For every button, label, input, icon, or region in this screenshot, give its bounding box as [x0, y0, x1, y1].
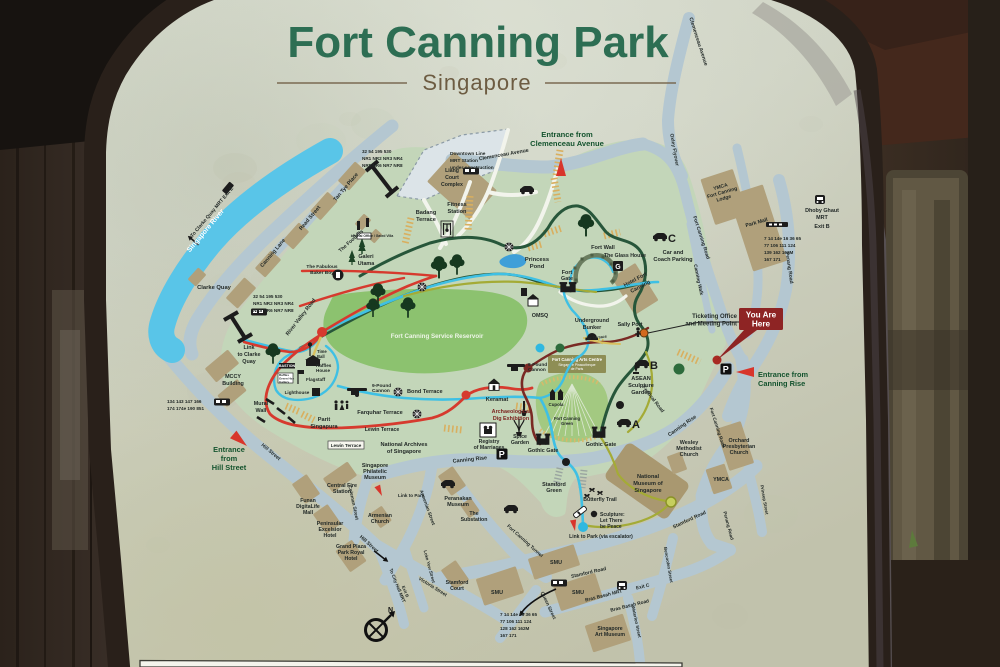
- svg-text:Link: Link: [243, 345, 254, 351]
- svg-text:Mall: Mall: [303, 510, 314, 516]
- svg-text:Green: Green: [561, 421, 574, 426]
- svg-text:Museum: Museum: [364, 475, 386, 481]
- svg-text:7 14 14e 16 36 65: 7 14 14e 16 36 65: [500, 612, 537, 617]
- svg-text:to Clarke: to Clarke: [237, 352, 260, 358]
- svg-text:Lewin Terrace: Lewin Terrace: [365, 427, 400, 433]
- svg-text:Flagstaff: Flagstaff: [306, 377, 326, 382]
- svg-text:National: National: [637, 474, 660, 480]
- svg-text:32 54 195 530: 32 54 195 530: [253, 294, 283, 299]
- svg-text:Link to Park (via escalator): Link to Park (via escalator): [569, 534, 633, 540]
- svg-text:134 143 147 166: 134 143 147 166: [167, 399, 202, 404]
- svg-text:Fort Canning Park: Fort Canning Park: [287, 18, 669, 67]
- svg-text:139 162 162M: 139 162 162M: [764, 250, 794, 255]
- svg-text:Court: Court: [450, 586, 464, 592]
- svg-text:G: G: [615, 264, 621, 271]
- svg-text:N: N: [388, 607, 393, 614]
- svg-text:Church: Church: [680, 452, 699, 458]
- svg-text:Keramat: Keramat: [486, 397, 509, 403]
- svg-text:Art Museum: Art Museum: [595, 632, 625, 638]
- svg-text:Here: Here: [752, 320, 771, 329]
- svg-text:Dhoby Ghaut: Dhoby Ghaut: [805, 208, 839, 214]
- svg-text:Entrance: Entrance: [213, 445, 245, 454]
- svg-text:Station: Station: [448, 209, 468, 215]
- svg-text:MRT Station: MRT Station: [450, 158, 478, 164]
- svg-text:Lighthouse: Lighthouse: [285, 390, 310, 395]
- svg-text:Museum of: Museum of: [633, 481, 663, 487]
- svg-text:Dig Exhibition: Dig Exhibition: [493, 416, 529, 422]
- svg-text:Car and: Car and: [663, 250, 684, 256]
- svg-text:A: A: [632, 419, 640, 431]
- svg-text:Gallery: Gallery: [279, 380, 290, 384]
- svg-text:and Meeting Point: and Meeting Point: [685, 322, 737, 328]
- svg-text:Court: Court: [445, 175, 459, 181]
- svg-text:Mural: Mural: [254, 401, 269, 407]
- svg-text:Gothic Gate: Gothic Gate: [528, 448, 559, 454]
- svg-text:Lewin Terrace: Lewin Terrace: [331, 443, 362, 448]
- svg-text:Underground: Underground: [575, 318, 609, 324]
- svg-text:OMSQ: OMSQ: [532, 313, 548, 319]
- svg-text:P: P: [723, 365, 729, 375]
- svg-text:Cannon: Cannon: [372, 388, 390, 394]
- svg-text:of Marriages: of Marriages: [474, 445, 505, 451]
- svg-text:Ball: Ball: [317, 354, 325, 359]
- svg-text:Terrace: Terrace: [416, 217, 436, 223]
- svg-text:Farquhar Terrace: Farquhar Terrace: [357, 410, 403, 416]
- svg-text:BASTION: BASTION: [279, 364, 296, 368]
- svg-text:Singapore: Singapore: [634, 488, 661, 494]
- svg-text:Ticketing Office: Ticketing Office: [692, 314, 738, 320]
- svg-text:SMU: SMU: [572, 590, 584, 596]
- svg-text:Building: Building: [222, 381, 244, 387]
- svg-text:Fitness: Fitness: [447, 202, 467, 208]
- svg-text:Clarke Quay: Clarke Quay: [197, 285, 232, 291]
- svg-text:Church: Church: [730, 450, 749, 456]
- svg-text:Parit: Parit: [318, 417, 331, 423]
- svg-text:Cupola: Cupola: [549, 402, 564, 407]
- svg-text:32 54 195 530: 32 54 195 530: [362, 149, 392, 154]
- svg-text:C: C: [668, 233, 676, 245]
- svg-text:Utama: Utama: [358, 261, 375, 267]
- svg-text:bPortal Office / Gated Villa: bPortal Office / Gated Villa: [351, 234, 394, 238]
- svg-text:Sally Port: Sally Port: [618, 322, 643, 328]
- svg-text:Green: Green: [546, 488, 562, 494]
- svg-text:The Fabulous: The Fabulous: [306, 264, 338, 270]
- svg-text:7 14 14e 16 36 65: 7 14 14e 16 36 65: [764, 236, 801, 241]
- svg-text:Fort Canning Service Reservoir: Fort Canning Service Reservoir: [391, 333, 484, 340]
- svg-text:of Singapore: of Singapore: [387, 449, 421, 455]
- svg-text:B: B: [650, 360, 658, 372]
- svg-text:Galeri: Galeri: [358, 254, 374, 260]
- svg-text:77 106 111 124: 77 106 111 124: [500, 619, 532, 624]
- svg-text:77 106 111 124: 77 106 111 124: [764, 243, 796, 248]
- svg-text:Canning Rise: Canning Rise: [758, 379, 805, 388]
- svg-text:ASEAN: ASEAN: [631, 376, 651, 382]
- svg-text:Quay: Quay: [242, 359, 255, 365]
- svg-text:Badang: Badang: [416, 210, 437, 216]
- svg-text:The Glass House: The Glass House: [604, 253, 646, 259]
- svg-text:128 162 162M: 128 162 162M: [500, 626, 530, 631]
- svg-text:Singapore: Singapore: [422, 70, 531, 95]
- svg-text:P: P: [499, 450, 505, 460]
- svg-text:de Paris: de Paris: [571, 367, 584, 371]
- svg-text:Bunker: Bunker: [583, 325, 602, 331]
- svg-text:Cannon: Cannon: [528, 367, 546, 373]
- svg-text:Hill Street: Hill Street: [212, 463, 247, 472]
- svg-text:under construction: under construction: [450, 165, 494, 171]
- svg-text:NR5 NR6 NR7 NR8: NR5 NR6 NR7 NR8: [253, 308, 294, 313]
- svg-text:Gothic Gate: Gothic Gate: [586, 442, 617, 448]
- svg-text:MRT: MRT: [816, 215, 828, 221]
- svg-text:Singapura: Singapura: [310, 424, 338, 430]
- svg-text:Hotel: Hotel: [345, 556, 359, 562]
- svg-text:Church: Church: [371, 519, 389, 525]
- svg-text:NR1 NR2 NR3 NR4: NR1 NR2 NR3 NR4: [362, 156, 403, 161]
- svg-text:NR5 NR6 NR7 NR8: NR5 NR6 NR7 NR8: [362, 163, 403, 168]
- svg-text:SMU: SMU: [550, 560, 562, 566]
- svg-text:Complex: Complex: [441, 182, 463, 188]
- svg-text:NR1 NR2 NR3 NR4: NR1 NR2 NR3 NR4: [253, 301, 294, 306]
- svg-text:Fort Wall: Fort Wall: [591, 245, 615, 251]
- svg-text:Coach Parking: Coach Parking: [653, 257, 693, 263]
- svg-text:Garden: Garden: [511, 440, 529, 446]
- svg-text:167 171: 167 171: [500, 633, 517, 638]
- svg-text:YMCA: YMCA: [713, 477, 729, 483]
- svg-text:Substation: Substation: [461, 517, 488, 523]
- svg-text:House: House: [316, 368, 330, 373]
- svg-text:Exit B: Exit B: [814, 224, 829, 230]
- svg-text:Hotel: Hotel: [324, 533, 338, 539]
- svg-text:from: from: [221, 454, 238, 463]
- svg-text:Princess: Princess: [525, 257, 549, 263]
- svg-text:Pond: Pond: [530, 264, 545, 270]
- svg-text:Baker Boy: Baker Boy: [310, 270, 334, 276]
- svg-text:Museum: Museum: [447, 502, 469, 508]
- svg-text:Entrance from: Entrance from: [758, 370, 809, 379]
- svg-text:Archaeological: Archaeological: [492, 409, 531, 415]
- svg-text:Entrance from: Entrance from: [541, 130, 593, 139]
- svg-text:Clemenceau Avenue: Clemenceau Avenue: [530, 139, 604, 148]
- svg-text:167 171: 167 171: [764, 257, 781, 262]
- svg-text:Gate: Gate: [561, 276, 573, 282]
- svg-text:National Archives: National Archives: [380, 442, 427, 448]
- svg-text:be Peace: be Peace: [600, 524, 622, 530]
- svg-text:Butterfly Trail: Butterfly Trail: [583, 497, 617, 503]
- svg-text:Wall: Wall: [256, 408, 267, 414]
- svg-text:Bond Terrace: Bond Terrace: [407, 389, 443, 395]
- svg-text:MCCY: MCCY: [225, 374, 241, 380]
- svg-text:You Are: You Are: [746, 311, 777, 320]
- svg-text:SMU: SMU: [491, 590, 503, 596]
- svg-text:174 174e 190 851: 174 174e 190 851: [167, 406, 204, 411]
